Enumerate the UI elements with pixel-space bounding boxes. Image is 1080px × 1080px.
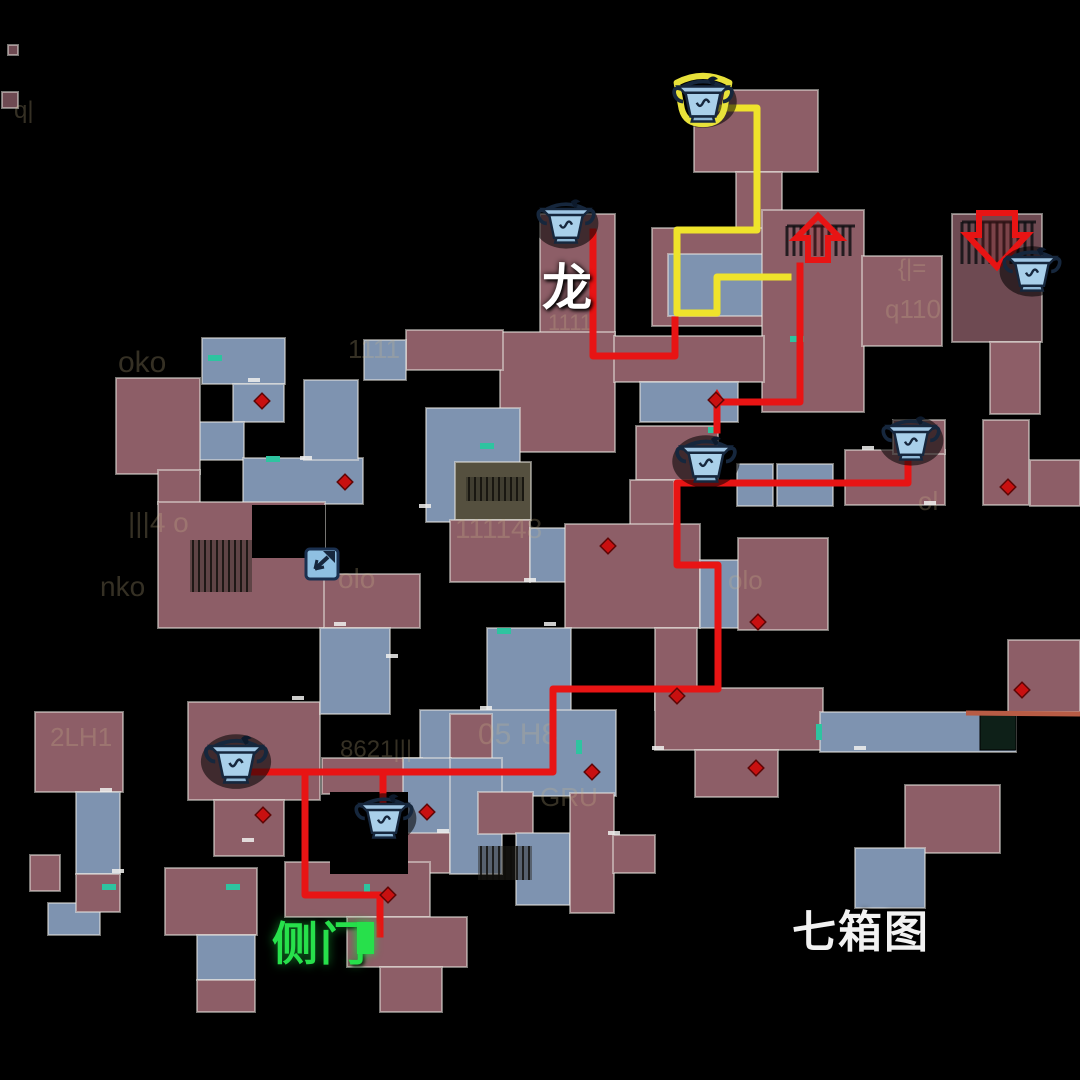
map-room bbox=[695, 750, 778, 797]
map-room bbox=[197, 935, 255, 980]
map-room bbox=[214, 800, 284, 856]
wall-tick bbox=[248, 378, 260, 382]
ghost-text: 2LH1 bbox=[50, 722, 112, 752]
chest-icon-highlighted[interactable] bbox=[669, 75, 737, 128]
ghost-text: |||4 o bbox=[128, 507, 189, 538]
chest-icon[interactable] bbox=[352, 793, 417, 843]
ghost-text: GRU bbox=[540, 782, 598, 812]
ghost-text: olo bbox=[338, 563, 375, 594]
map-room bbox=[197, 980, 255, 1012]
wall-tick bbox=[608, 831, 620, 835]
map-room bbox=[905, 785, 1000, 853]
wall-tick bbox=[242, 838, 254, 842]
ghost-text: q110 bbox=[885, 294, 941, 324]
map-room bbox=[380, 967, 442, 1012]
map-room bbox=[30, 855, 60, 891]
map-room bbox=[1008, 640, 1080, 712]
map-room bbox=[76, 874, 120, 912]
exit-door-icon[interactable] bbox=[306, 549, 338, 579]
wall-tick bbox=[524, 578, 536, 582]
door-marker-teal bbox=[480, 443, 494, 449]
stairs-texture bbox=[466, 477, 524, 501]
map-dark-room bbox=[980, 714, 1016, 750]
wall-tick bbox=[292, 696, 304, 700]
map-room bbox=[406, 330, 503, 370]
map-room bbox=[76, 792, 120, 874]
chest-icon[interactable] bbox=[672, 435, 740, 488]
ghost-text: 111148 bbox=[455, 513, 542, 544]
side-door-marker bbox=[357, 922, 374, 954]
label-seven-chest-map: 七箱图 bbox=[792, 896, 930, 960]
chest-icon[interactable] bbox=[1000, 246, 1065, 296]
ghost-text: q| bbox=[14, 97, 34, 124]
game-map-viewport[interactable]: oko1111|||4 oolonko11114805 H8GRUq110{|=… bbox=[0, 0, 1080, 1080]
wall-tick bbox=[419, 504, 431, 508]
ghost-text: 8621||| bbox=[340, 736, 412, 763]
wall-tick bbox=[480, 706, 492, 710]
door-marker-teal bbox=[266, 456, 280, 462]
map-room bbox=[990, 342, 1040, 414]
map-room bbox=[116, 378, 200, 474]
wall-tick bbox=[386, 654, 398, 658]
wall-tick bbox=[334, 622, 346, 626]
wall-tick bbox=[300, 456, 312, 460]
door-marker-teal bbox=[497, 628, 511, 634]
door-marker-teal bbox=[208, 355, 222, 361]
wall-tick bbox=[112, 869, 124, 873]
ghost-text: oko bbox=[118, 346, 166, 379]
map-room bbox=[8, 45, 18, 55]
map-room bbox=[198, 422, 244, 460]
map-room bbox=[320, 628, 390, 714]
door-marker-teal bbox=[102, 884, 116, 890]
map-room bbox=[1030, 460, 1080, 506]
map-room bbox=[478, 792, 533, 834]
door-marker-teal bbox=[816, 724, 822, 740]
chest-icon[interactable] bbox=[879, 415, 944, 465]
map-room bbox=[304, 380, 358, 460]
chest-icon[interactable] bbox=[534, 198, 599, 248]
wall-tick bbox=[854, 746, 866, 750]
ghost-text: olo bbox=[728, 565, 763, 595]
ghost-text: nko bbox=[100, 571, 145, 602]
stairs-texture bbox=[190, 540, 252, 592]
wall-tick bbox=[100, 788, 112, 792]
wall-tick bbox=[652, 746, 664, 750]
ghost-text: 05 H8 bbox=[478, 718, 558, 751]
wall-tick bbox=[862, 446, 874, 450]
wall-tick bbox=[924, 501, 936, 505]
map-room bbox=[487, 628, 571, 712]
wall-tick bbox=[437, 829, 449, 833]
door-marker-teal bbox=[226, 884, 240, 890]
stairs-texture bbox=[478, 846, 532, 880]
ghost-text: {|= bbox=[898, 255, 926, 282]
label-side-door: 侧门 bbox=[272, 908, 368, 974]
map-room bbox=[158, 470, 200, 504]
map-room bbox=[165, 868, 257, 935]
door-marker-teal bbox=[576, 740, 582, 754]
orange-route-line bbox=[966, 713, 1080, 714]
chest-icon[interactable] bbox=[201, 734, 271, 789]
map-room bbox=[613, 835, 655, 873]
label-dragon: 龙 bbox=[542, 248, 594, 320]
wall-tick bbox=[544, 622, 556, 626]
ghost-text: 1111 bbox=[348, 334, 400, 364]
